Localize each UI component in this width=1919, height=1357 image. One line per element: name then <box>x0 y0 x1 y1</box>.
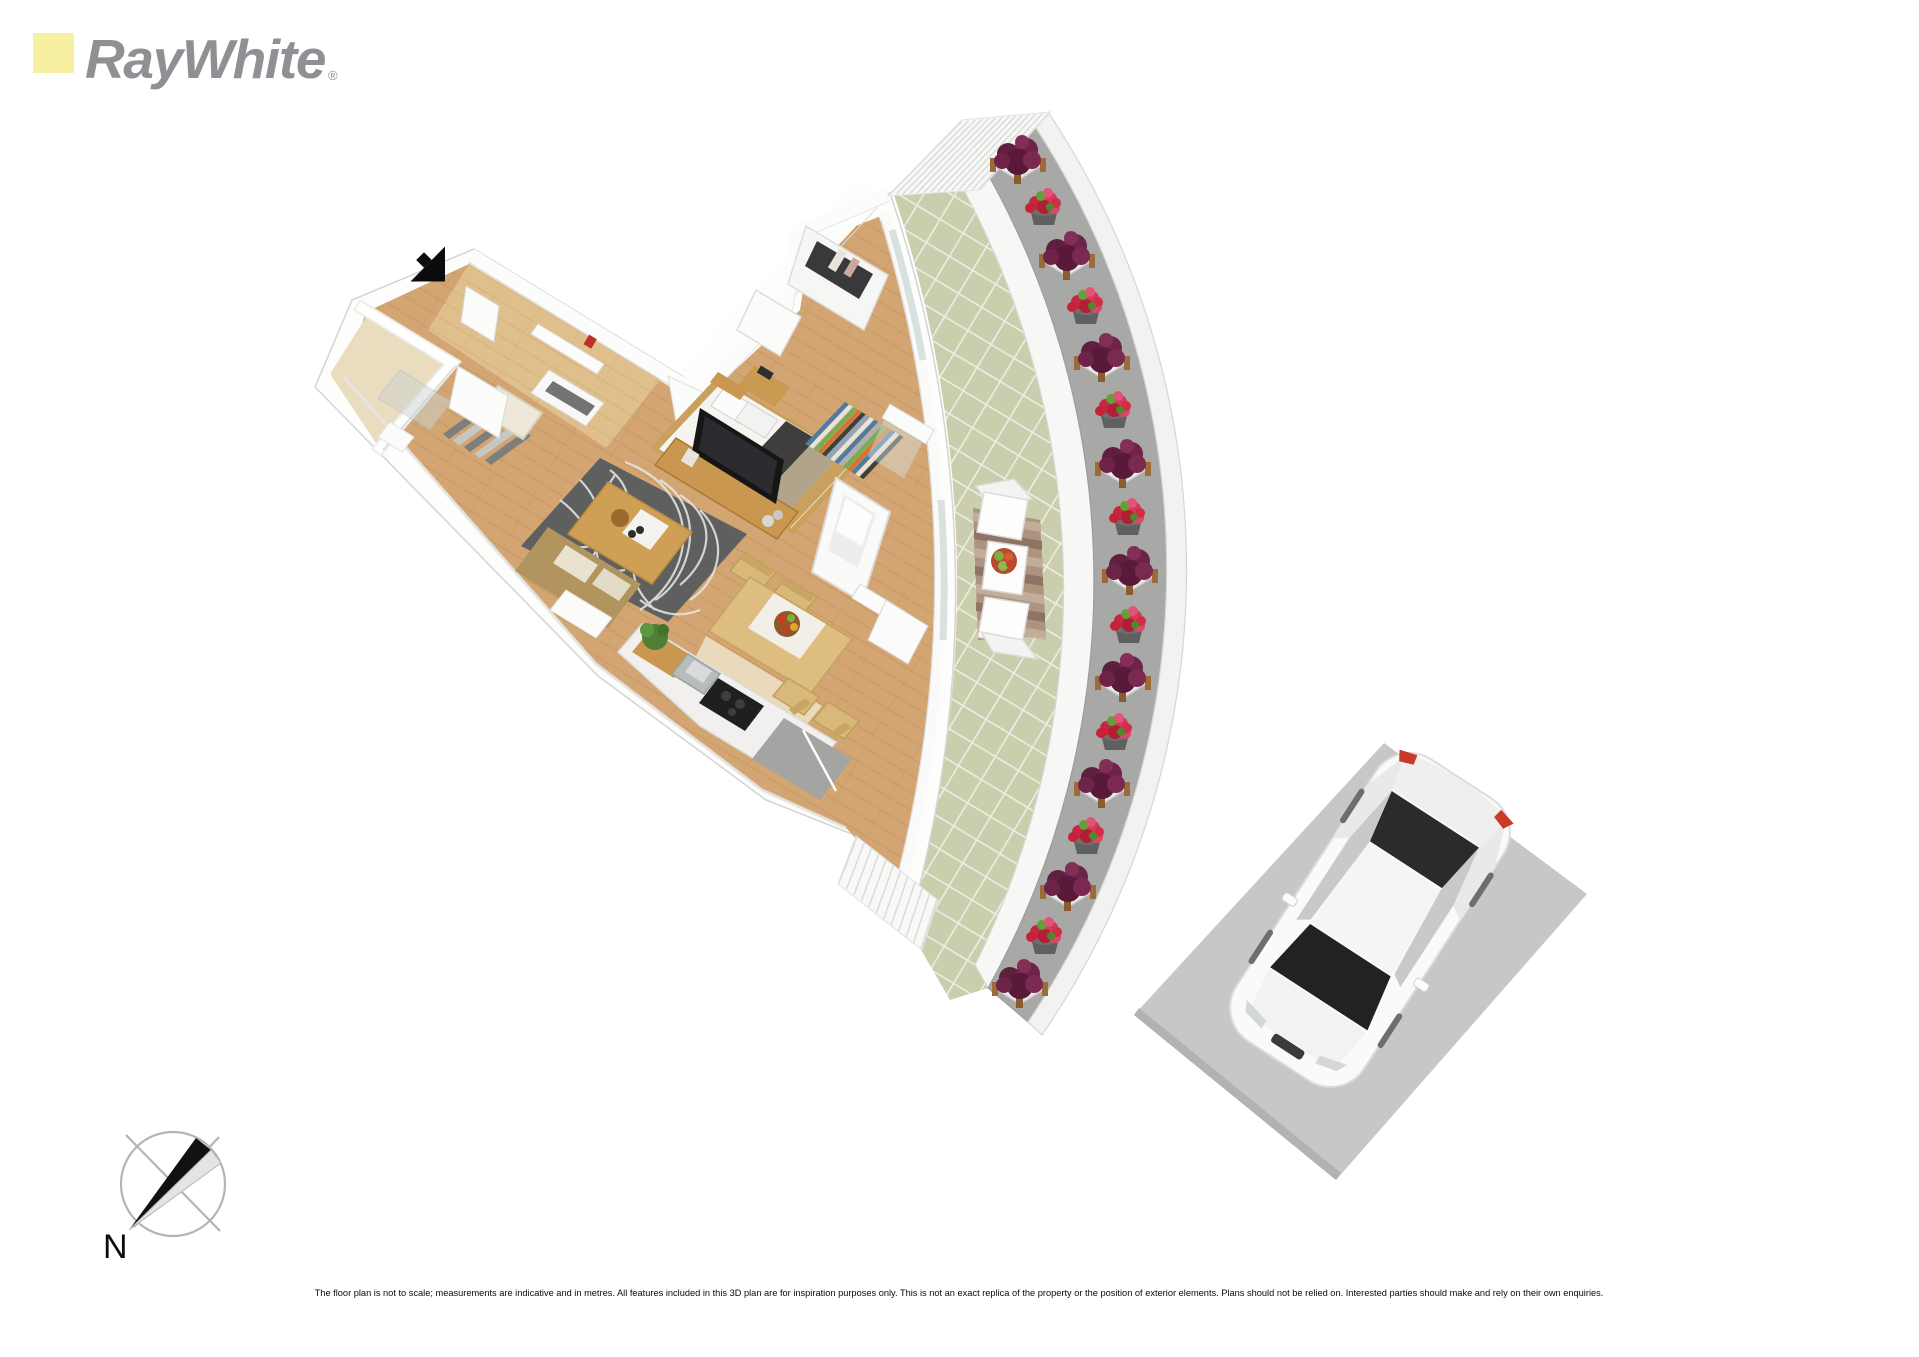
svg-text:N: N <box>103 1228 128 1266</box>
svg-text:®: ® <box>328 68 338 83</box>
svg-text:The floor plan is not to scale: The floor plan is not to scale; measurem… <box>315 1288 1604 1298</box>
svg-text:RayWhite: RayWhite <box>85 28 326 90</box>
